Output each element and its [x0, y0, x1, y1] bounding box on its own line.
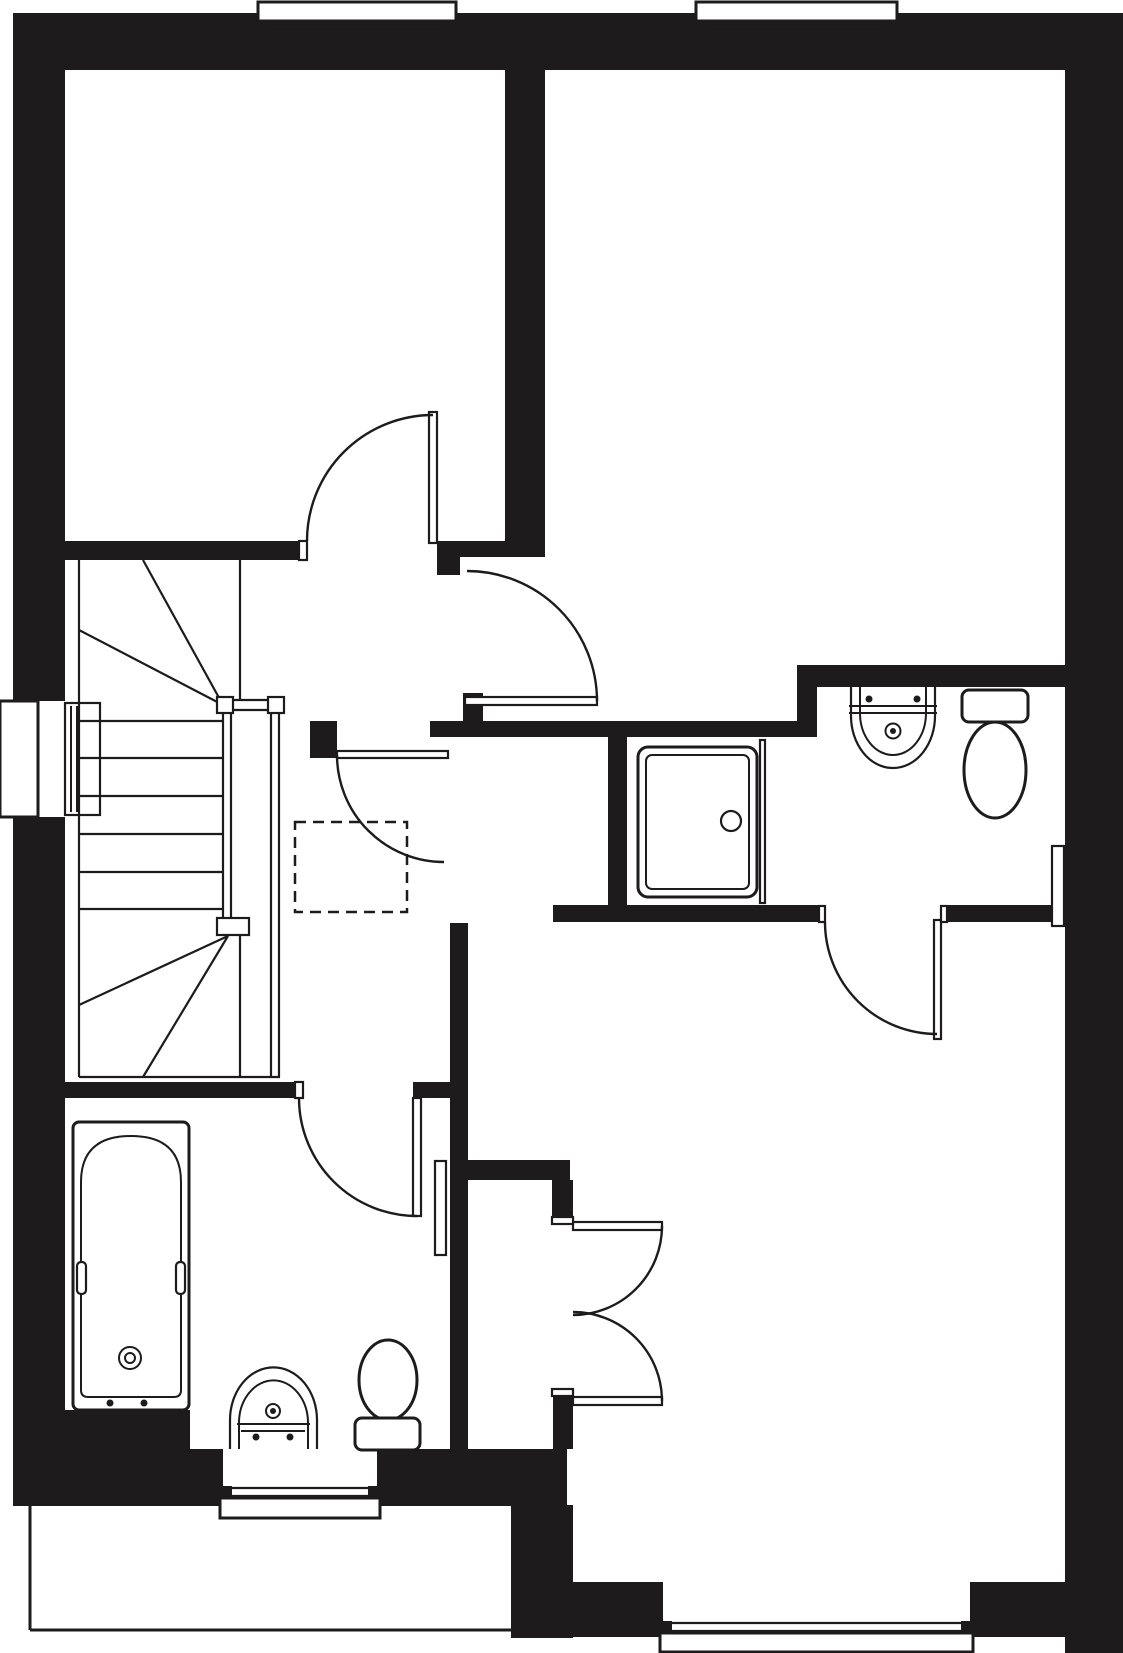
bath-foot-right [141, 1400, 148, 1407]
window-top-b-jamb-right [885, 21, 893, 33]
stair-newel-top-left [217, 697, 233, 713]
bath-grip-right [176, 1262, 185, 1294]
hall-east-wall [450, 923, 468, 1449]
window-bath-jamb-right [368, 1486, 377, 1498]
bathroom-door-jamb-tick [295, 1082, 303, 1098]
left-wall-upper [13, 70, 65, 701]
ensuite-basin-drain-dot [890, 728, 896, 734]
bathroom-north-wall [65, 1082, 295, 1098]
bath-foot-left [107, 1400, 114, 1407]
ensuite-door-arc [825, 922, 937, 1034]
window-lounge-jamb-right [961, 1621, 970, 1633]
bed1-door-stub [437, 557, 460, 575]
bathroom-basin-tap-dot [270, 1408, 276, 1414]
left-wall-bath-bump [65, 1410, 190, 1449]
cupboard-east-wall-bottom [553, 1396, 573, 1449]
window-top-a-outer-box [258, 2, 456, 21]
stair-winder-bottom-1 [79, 936, 228, 1005]
window-left-outer-box [0, 701, 38, 817]
shower-niche-wall [608, 737, 627, 905]
cupboard-north-wall [468, 1160, 570, 1180]
ensuite-door-jamb-left [819, 906, 825, 922]
stair-winder-bottom-2 [143, 936, 228, 1077]
ensuite-basin-tap-right [914, 696, 921, 703]
bathroom-south-wall-left [13, 1449, 223, 1506]
window-bath-outer-box [220, 1498, 380, 1518]
ensuite-radiator [1052, 846, 1064, 926]
stair-newel-bottom [217, 918, 249, 935]
cupboard-east-wall-top [552, 1180, 573, 1217]
window-lounge-jamb-left [663, 1621, 672, 1633]
window-top-a-jamb-right [444, 21, 452, 33]
window-top-a-jamb-left [262, 21, 270, 33]
bathroom-toilet-bowl [359, 1340, 417, 1420]
bathroom-basin-inner [239, 1380, 308, 1449]
cupboard-door-arc-bottom [573, 1312, 662, 1401]
bed1-door-jamb-tick [299, 541, 307, 560]
left-wall-lower [13, 817, 65, 1506]
ensuite-south-wall-right [940, 905, 1065, 922]
bed2-door-arc [467, 571, 597, 701]
loft-hatch-dashed-square [295, 822, 407, 912]
bath-grip-left [77, 1262, 86, 1294]
bathroom-north-stub [413, 1082, 468, 1098]
bed1-door-leaf [429, 412, 437, 543]
bed1-door-arc [307, 415, 433, 541]
bed1-south-wall-left [65, 541, 307, 560]
window-top-b-outer-box [696, 2, 897, 21]
ensuite-step-wall [797, 665, 817, 721]
lounge-south-wall-right [970, 1582, 1065, 1637]
cupboard-door-leaf-top [573, 1222, 662, 1230]
landing-south-wall [430, 721, 817, 737]
stair-newel-top-right [268, 697, 284, 713]
ensuite-door-jamb-right [941, 906, 947, 922]
shower-tray [638, 747, 757, 897]
window-lounge-outer-box [660, 1633, 973, 1652]
bathroom-door-arc [299, 1098, 417, 1216]
bed1-south-wall-right [437, 541, 505, 557]
cupboard-jamb-tick-top [552, 1217, 573, 1224]
lounge-south-wall-left [573, 1582, 663, 1637]
bathroom-radiator [435, 1161, 446, 1255]
ensuite-door-leaf [934, 920, 941, 1039]
cupboard-door-leaf-bottom [573, 1397, 662, 1405]
ensuite-north-wall [817, 665, 1065, 687]
bath-outer [73, 1122, 189, 1410]
cupboard-door-arc-top [573, 1226, 662, 1315]
bathroom-basin-dot-right [287, 1434, 294, 1441]
landing-door-leaf [337, 751, 448, 758]
window-top-b-jamb-left [700, 21, 708, 33]
ensuite-south-wall-left [553, 905, 820, 922]
ensuite-toilet-bowl [964, 722, 1026, 818]
right-wall [1065, 70, 1123, 1653]
window-bath-jamb-left [223, 1486, 232, 1498]
bathroom-south-wall-right [377, 1449, 567, 1506]
bathroom-toilet-cistern [355, 1418, 420, 1450]
ensuite-basin-tap-left [866, 696, 873, 703]
bed2-door-leaf [465, 697, 597, 705]
landing-door-arc [337, 755, 444, 862]
top-wall [13, 13, 1123, 70]
shower-screen [760, 740, 765, 903]
bedroom-divider-wall [505, 70, 545, 557]
floor-plan-drawing [0, 0, 1123, 1653]
ensuite-toilet-cistern [962, 690, 1028, 722]
landing-wall-stub [310, 721, 337, 758]
floor-plan-page [0, 0, 1123, 1653]
bathroom-door-leaf [413, 1098, 421, 1216]
exterior-step-wall [511, 1505, 573, 1638]
bathroom-basin-dot-left [253, 1434, 260, 1441]
cupboard-jamb-tick-bottom [552, 1389, 573, 1396]
